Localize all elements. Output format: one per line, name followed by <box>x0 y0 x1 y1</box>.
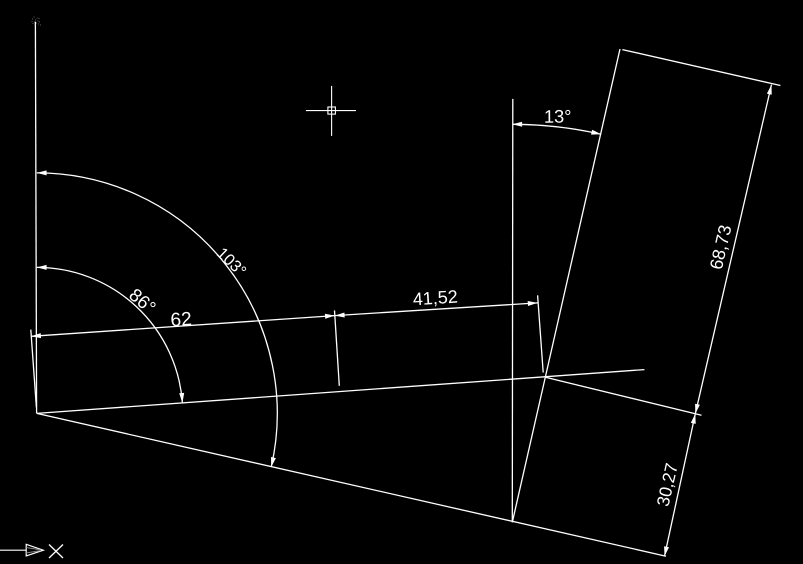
svg-text:62: 62 <box>170 309 193 331</box>
svg-text:13°: 13° <box>544 107 572 127</box>
svg-text:41,52: 41,52 <box>412 286 458 309</box>
